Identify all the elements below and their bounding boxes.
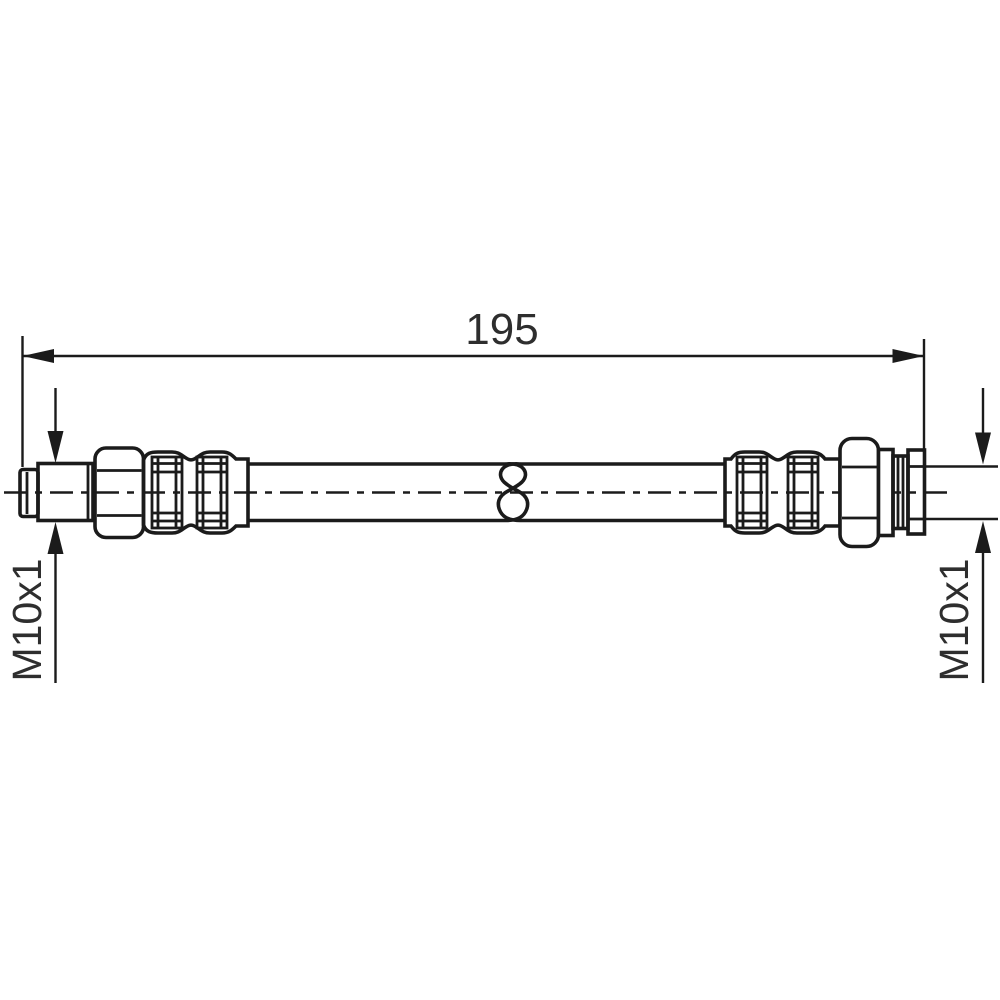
arrow-right-icon	[893, 349, 925, 363]
arrow-down-icon	[48, 431, 64, 463]
technical-drawing: 195	[0, 0, 1000, 1000]
right-hex-nut	[840, 439, 879, 547]
arrow-up-icon	[975, 521, 991, 553]
hose-drawing-canvas: 195	[0, 0, 1000, 1000]
length-label: 195	[465, 305, 538, 354]
left-thread-label: M10x1	[4, 558, 50, 681]
left-thread-dimension: M10x1	[4, 388, 64, 683]
right-thread-dimension: M10x1	[925, 388, 998, 683]
arrow-up-icon	[48, 522, 64, 554]
right-collar	[879, 450, 894, 536]
arrow-left-icon	[23, 349, 55, 363]
arrow-down-icon	[975, 433, 991, 465]
right-thread-label: M10x1	[931, 558, 977, 681]
length-dimension: 195	[23, 305, 925, 467]
